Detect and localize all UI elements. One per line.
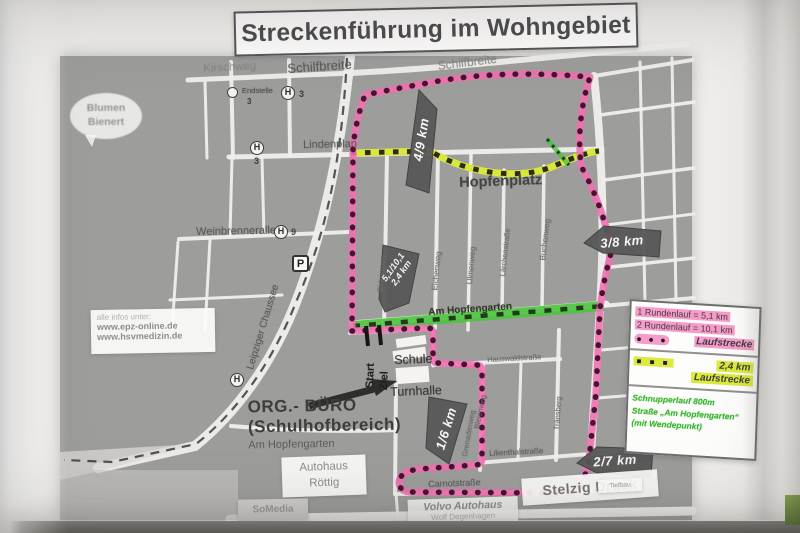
legend-square-dots-sample: ■ ■ ■: [633, 356, 673, 367]
street-label-hopfenplatz: Hopfenplatz: [459, 173, 542, 191]
page-title: Streckenführung im Wohngebiet: [241, 11, 631, 48]
bus-stop-h-icon-lindenplan: H: [250, 141, 264, 155]
parking-icon: P: [292, 255, 309, 272]
bus-line-number-weinbrennerallee: 9: [291, 227, 296, 237]
legend-laufstrecke-1: Laufstrecke: [694, 336, 754, 351]
org-buero-block: ORG.- BÜRO (Schulhofbereich) Am Hopfenga…: [248, 395, 402, 452]
photo-of-route-map: Streckenführung im Wohngebiet Kirschweg …: [0, 0, 800, 533]
autohaus-line2: Röttig: [282, 474, 366, 492]
bubble-tail: [85, 135, 96, 147]
autohaus-roettig-box: Autohaus Röttig: [281, 455, 366, 498]
start-label: Start: [365, 363, 377, 388]
bus-stop-h-icon-top: H: [281, 86, 295, 100]
tram-terminus-icon: [227, 87, 238, 98]
endstelle-label: Endstelle: [242, 87, 273, 95]
street-label-lindenplan: Lindenplan: [303, 139, 357, 151]
bus-stop-h-icon-chaussee: H: [230, 373, 244, 387]
bus-stop-h-icon-weinbrennerallee: H: [274, 225, 288, 239]
legend-pink-dots-sample: ● ● ●: [634, 333, 670, 345]
org-buero-line2: (Schulhofbereich): [248, 415, 401, 438]
info-box: alle infos unter: www.epz-online.de www.…: [91, 308, 216, 354]
street-label-carnotstrasse: Carnotstraße: [428, 478, 481, 489]
legend-24km-value: 2,4 km: [716, 360, 753, 373]
title-banner: Streckenführung im Wohngebiet: [234, 2, 639, 56]
bubble-line2: Bienert: [88, 116, 124, 130]
bus-line-number: 3: [299, 89, 304, 99]
green-corner-object: [785, 495, 800, 525]
street-label-weinbrennerallee: Weinbrennerallee: [196, 225, 282, 238]
legend-section-rundenlauf: 1 Rundenlauf = 5,1 km 2 Rundenlauf = 10,…: [630, 301, 760, 358]
blumen-bienert-bubble: Blumen Bienert: [70, 93, 142, 139]
schule-label: Schule: [394, 353, 433, 367]
legend-section-schnupperlauf: Schnupperlauf 800m Straße „Am Hopfengart…: [627, 386, 756, 442]
tiefbau-box: Tiefbau: [598, 478, 643, 493]
legend-laufstrecke-2: Laufstrecke: [691, 372, 753, 387]
endstelle-line-number: 3: [247, 97, 251, 106]
photo-bottom-edge: [0, 521, 800, 533]
info-line3: www.hsvmedizin.de: [97, 330, 209, 342]
org-buero-line1: ORG.- BÜRO: [248, 395, 401, 418]
bubble-line1: Blumen: [87, 102, 126, 116]
bus-line-number-lindenplan: 3: [254, 156, 259, 166]
somedia-box: SoMedia: [238, 498, 308, 520]
legend-panel: 1 Rundenlauf = 5,1 km 2 Rundenlauf = 10,…: [624, 299, 761, 461]
